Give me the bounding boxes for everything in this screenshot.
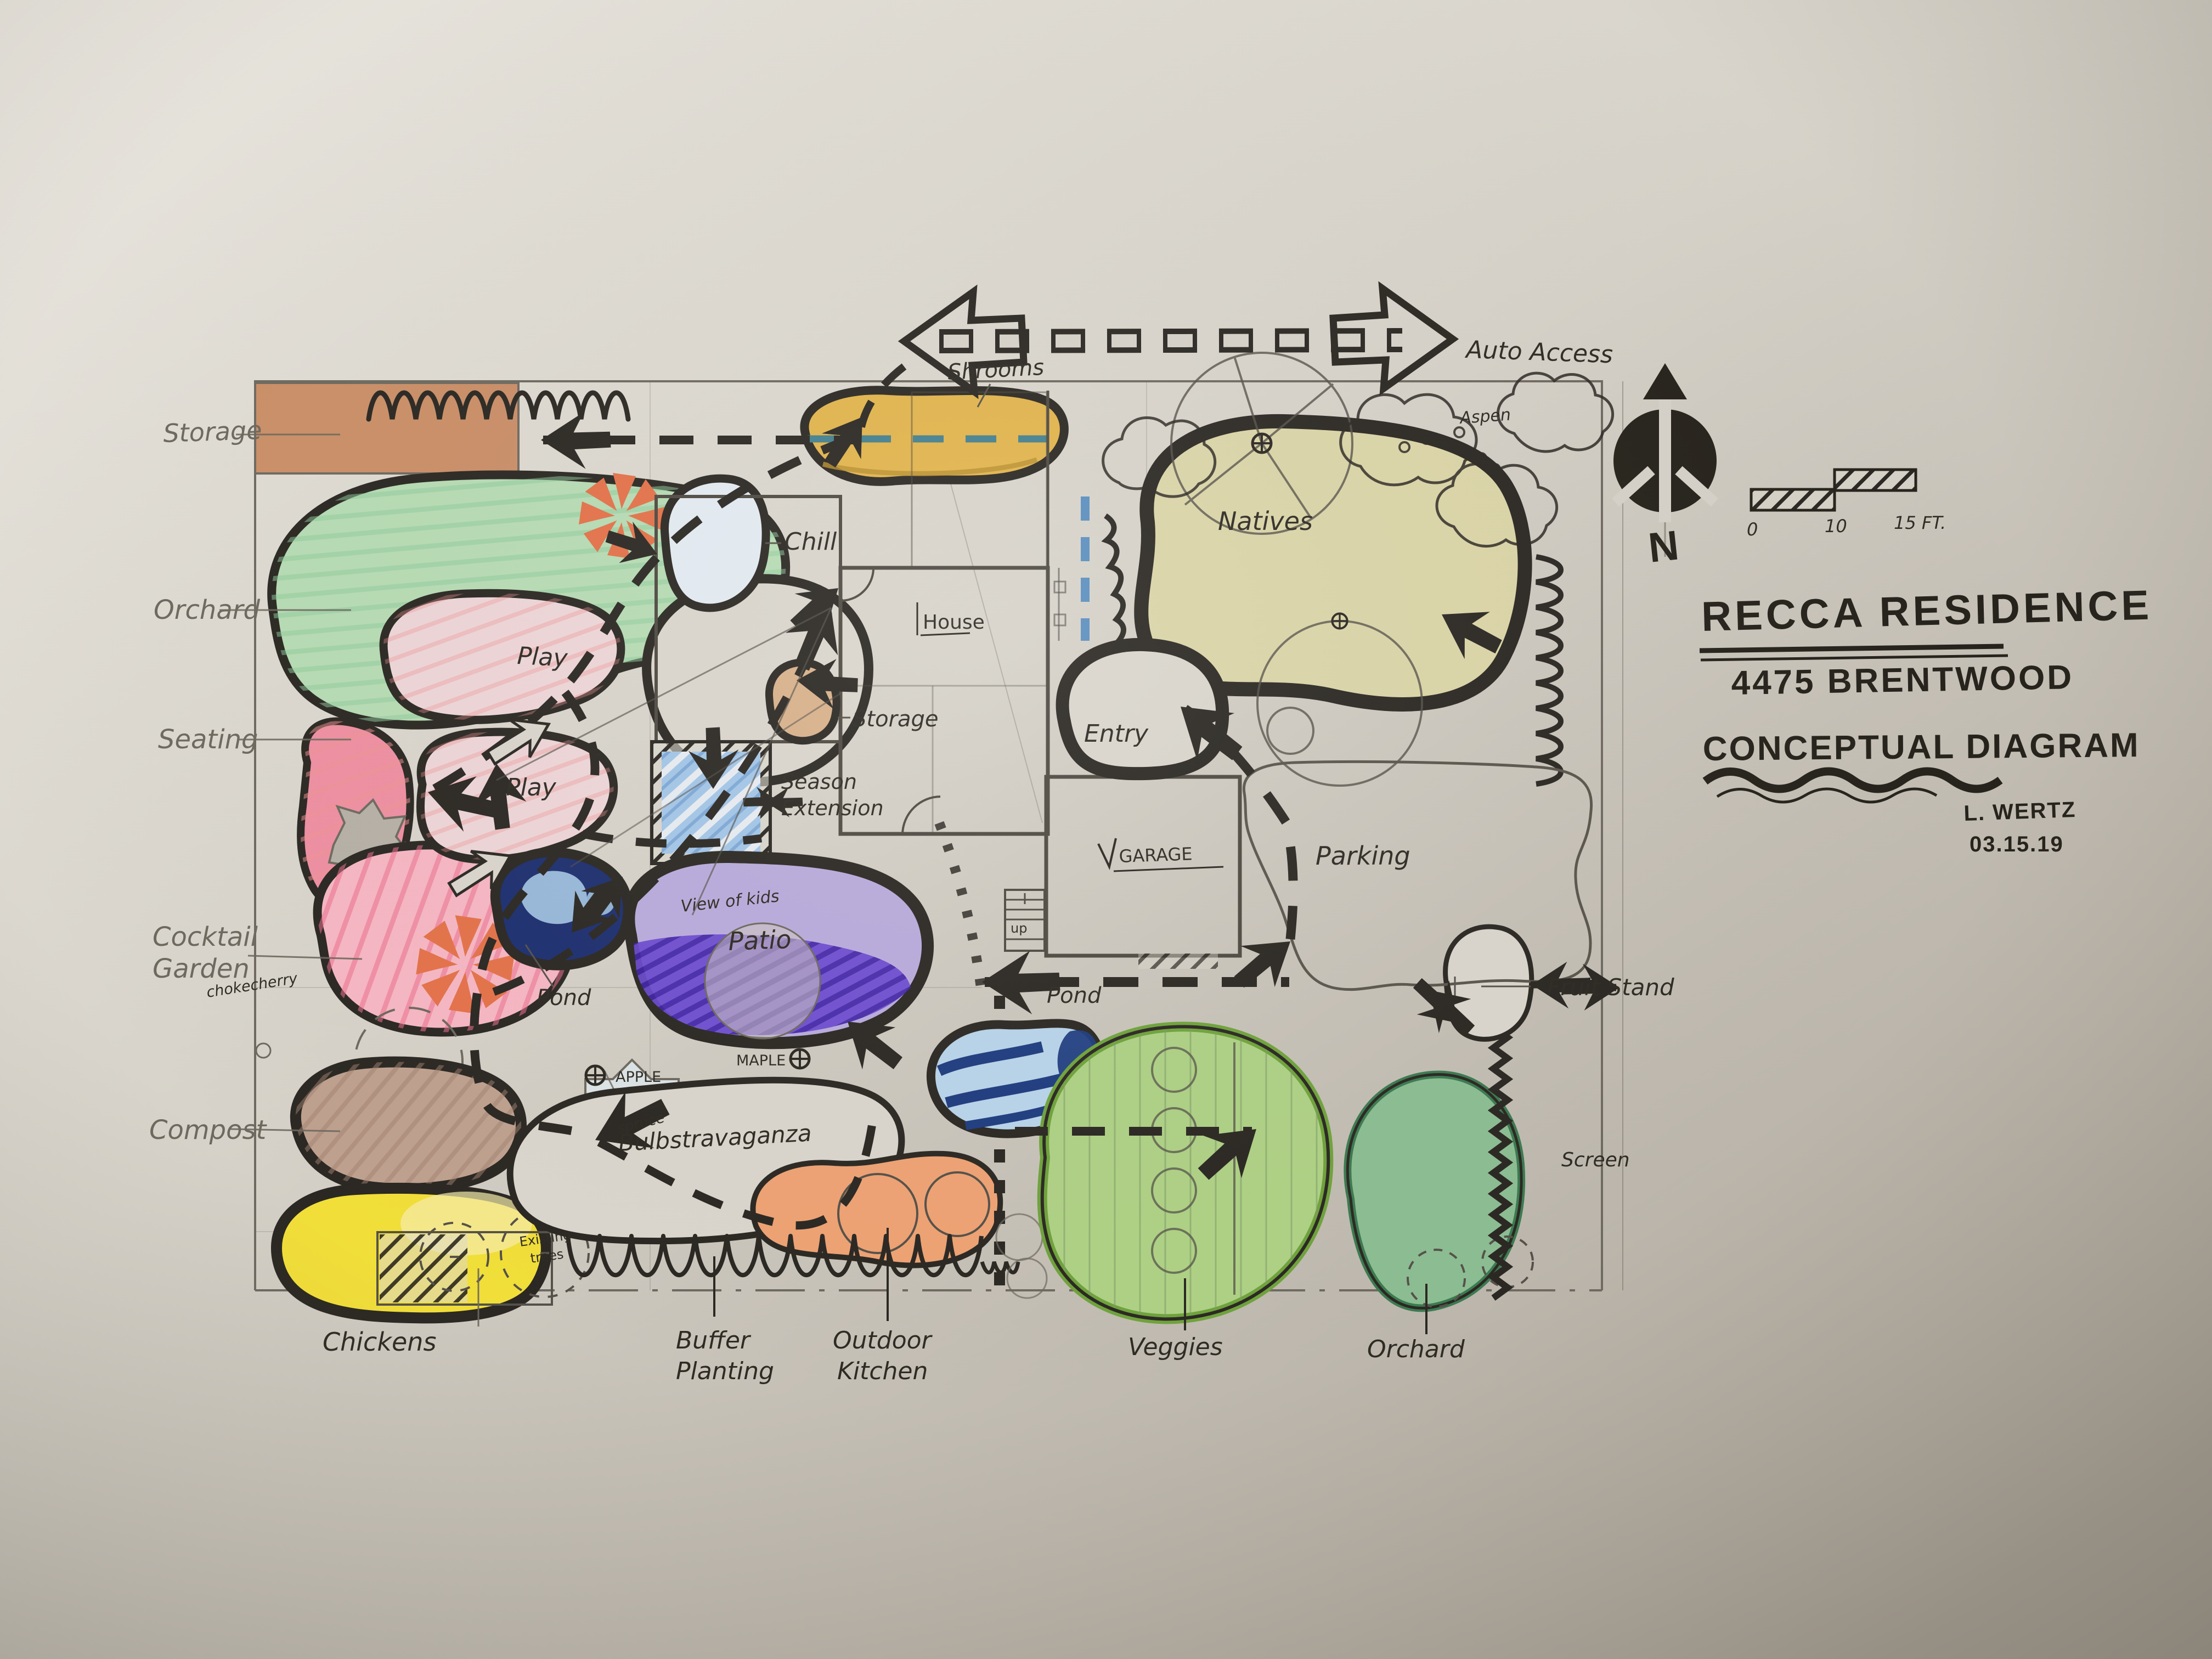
label-parking: Parking — [1316, 841, 1410, 871]
author: L. WERTZ — [1963, 798, 2076, 826]
area-compost — [296, 1062, 521, 1189]
label-entry: Entry — [1084, 720, 1149, 748]
label-season-2: Extension — [781, 796, 884, 820]
label-maple: MAPLE — [736, 1052, 786, 1069]
label-compost: Compost — [149, 1115, 267, 1145]
label-play-upper: Play — [516, 642, 568, 673]
label-buffer-1: Buffer — [676, 1327, 752, 1355]
label-pond-west: Pond — [537, 985, 591, 1011]
label-veggies: Veggies — [1128, 1333, 1223, 1361]
label-cocktail-1: Cocktail — [153, 922, 258, 952]
label-house: House — [923, 611, 985, 634]
label-play-lower: Play — [506, 774, 557, 802]
label-screen: Screen — [1561, 1149, 1630, 1171]
photo-of-plan: Storage Orchard Seating Cocktail Garden … — [0, 0, 2212, 1659]
label-chickens: Chickens — [323, 1327, 436, 1357]
area-chickens — [276, 1188, 552, 1318]
north-letter: N — [1646, 522, 1681, 572]
scale-tick-10: 10 — [1825, 516, 1847, 537]
label-buffer-2: Planting — [676, 1357, 774, 1385]
label-fruit-stand: Fruit Stand — [1547, 974, 1674, 1001]
doc-type: CONCEPTUAL DIAGRAM — [1703, 726, 2140, 768]
label-aspen: Aspen — [1458, 405, 1511, 428]
label-patio: Patio — [727, 924, 792, 956]
label-storage-yard: Storage — [162, 415, 262, 448]
label-seating: Seating — [158, 724, 258, 755]
label-auto-access: Auto Access — [1464, 336, 1613, 369]
label-natives: Natives — [1218, 506, 1313, 536]
scale-tick-15: 15 FT. — [1894, 512, 1946, 533]
conceptual-diagram: Storage Orchard Seating Cocktail Garden … — [0, 0, 2212, 1659]
label-shrooms: Shrooms — [947, 355, 1045, 385]
label-chill: Chill — [785, 528, 837, 556]
scale-tick-0: 0 — [1747, 519, 1758, 540]
label-season-1: Season — [781, 770, 857, 794]
project-address: 4475 BRENTWOOD — [1731, 658, 2074, 702]
label-apple: APPLE — [616, 1069, 661, 1086]
label-storage-house: Storage — [853, 707, 939, 732]
label-outdoor-2: Kitchen — [837, 1357, 928, 1385]
label-orchard-west: Orchard — [154, 595, 260, 625]
label-up: up — [1011, 921, 1027, 936]
date: 03.15.19 — [1970, 832, 2064, 856]
label-outdoor-1: Outdoor — [833, 1327, 933, 1355]
label-pond-south: Pond — [1047, 983, 1102, 1008]
label-garage: GARAGE — [1119, 843, 1193, 867]
label-orchard-south: Orchard — [1367, 1335, 1465, 1363]
